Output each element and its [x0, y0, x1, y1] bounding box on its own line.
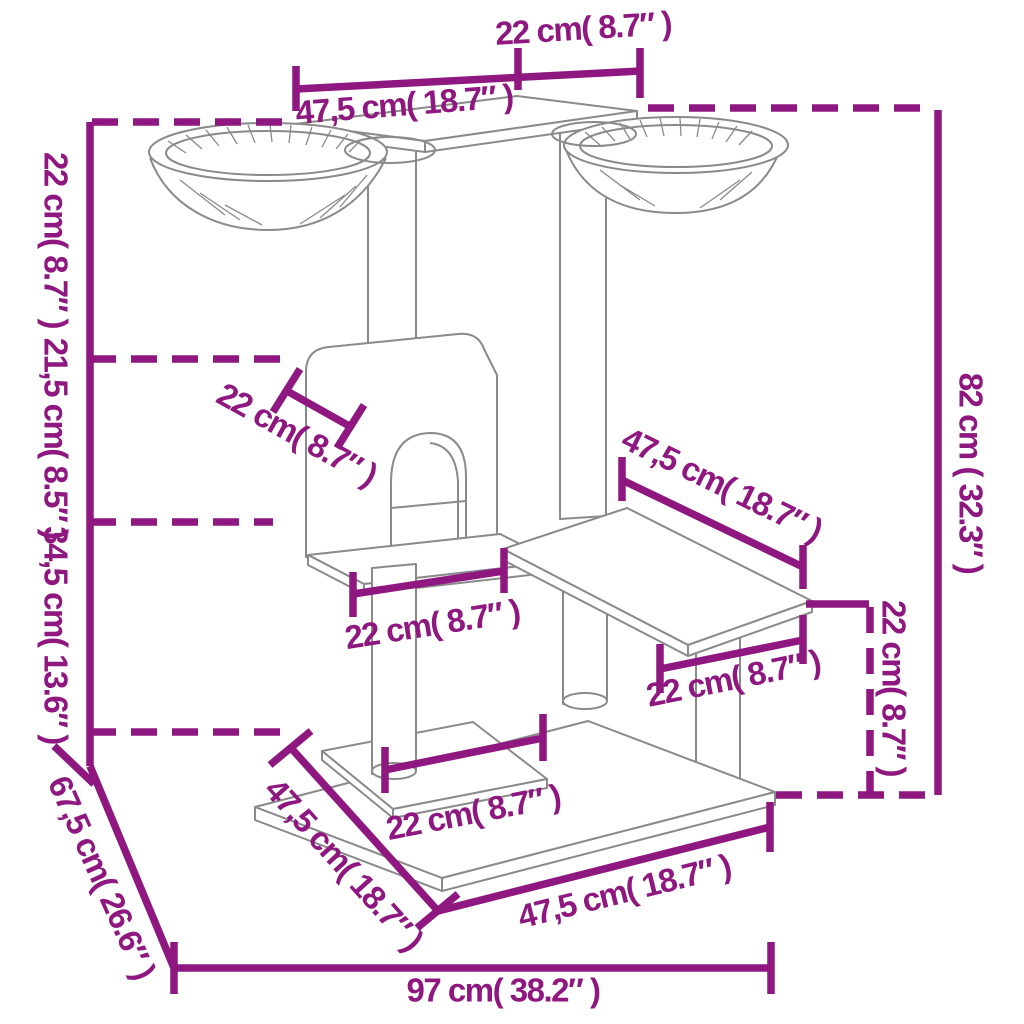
- post-mid-foot: [563, 693, 607, 709]
- cat-tree-diagram-canvas: [0, 0, 1024, 1024]
- dim-label-base-width: 97 cm( 38.2″ ): [407, 974, 600, 1007]
- house-arch-door: [391, 433, 466, 554]
- dim-label-total-height: 82 cm ( 32.3″ ): [955, 373, 988, 574]
- mid-platform: [503, 508, 812, 656]
- dimension-diagram: 22 cm( 8.7″ ) 47,5 cm( 18.7″ ) 22 cm( 8.…: [0, 0, 1024, 1024]
- dim-label-height-mid-segment: 21,5 cm( 8.5″ ): [40, 338, 73, 539]
- post-under-house: [372, 564, 416, 774]
- dim-label-mid-platform-height: 22 cm( 8.7″ ): [878, 600, 911, 776]
- dim-label-height-top-segment: 22 cm( 8.7″ ): [40, 152, 73, 328]
- dim-label-height-lower-segment: 34,5 cm( 13.6″ ): [40, 526, 73, 743]
